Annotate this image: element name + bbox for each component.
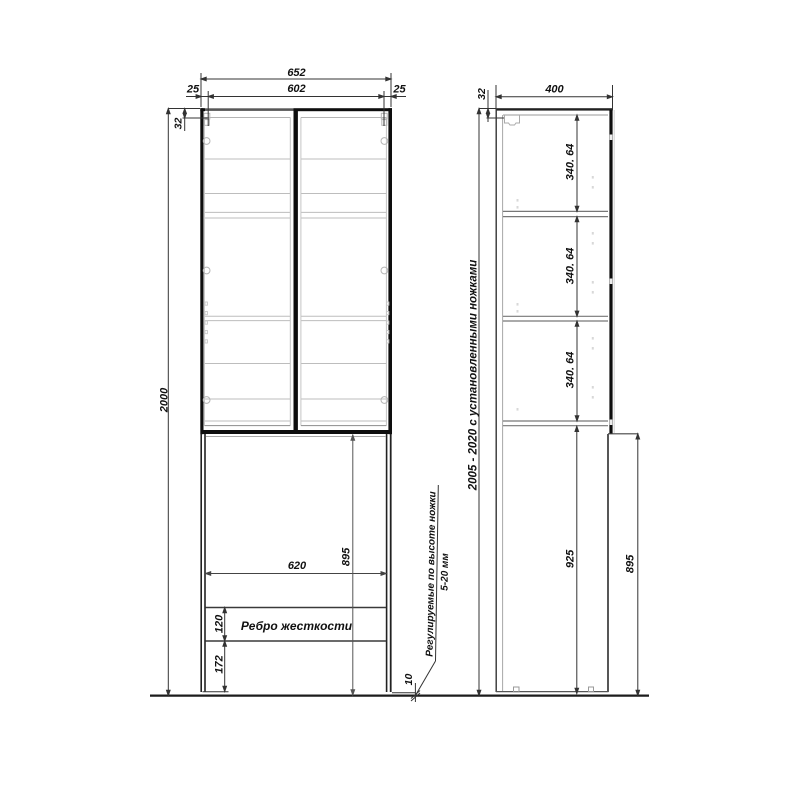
- svg-text:620: 620: [288, 560, 307, 572]
- svg-text:5-20 мм: 5-20 мм: [439, 553, 451, 591]
- svg-text:602: 602: [287, 83, 305, 95]
- svg-text:172: 172: [214, 655, 226, 673]
- svg-text:340. 64: 340. 64: [565, 352, 577, 389]
- svg-text:32: 32: [173, 118, 185, 130]
- svg-text:400: 400: [544, 83, 564, 95]
- svg-text:Ребро жесткости: Ребро жесткости: [241, 619, 353, 633]
- svg-text:32: 32: [476, 88, 488, 100]
- svg-text:2005 - 2020 с установленными н: 2005 - 2020 с установленными ножками: [468, 260, 480, 492]
- svg-text:2000: 2000: [159, 387, 171, 413]
- svg-text:10: 10: [403, 674, 415, 686]
- svg-text:925: 925: [565, 549, 577, 568]
- svg-text:340. 64: 340. 64: [565, 248, 577, 285]
- svg-text:895: 895: [625, 554, 637, 573]
- svg-text:652: 652: [287, 67, 305, 79]
- svg-text:895: 895: [341, 547, 353, 566]
- svg-text:120: 120: [214, 614, 226, 633]
- svg-text:25: 25: [186, 83, 200, 95]
- svg-text:25: 25: [392, 83, 406, 95]
- svg-text:340. 64: 340. 64: [565, 144, 577, 181]
